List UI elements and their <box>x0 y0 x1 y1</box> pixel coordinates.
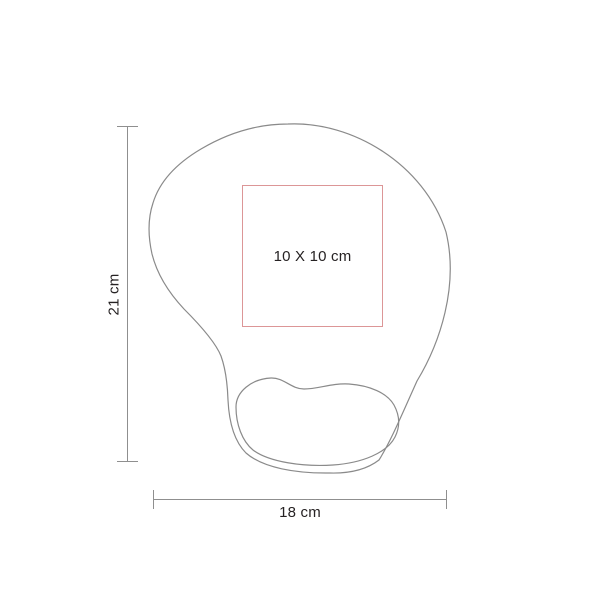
height-dimension-tick-bottom <box>117 461 138 462</box>
width-dimension-label: 18 cm <box>250 504 350 521</box>
wrist-rest-outline <box>236 378 399 465</box>
width-dimension-tick-right <box>446 490 447 509</box>
width-dimension-line <box>153 499 447 500</box>
height-dimension-tick-top <box>117 126 138 127</box>
height-dimension-label: 21 cm <box>106 265 123 325</box>
width-dimension-tick-left <box>153 490 154 509</box>
print-area-label: 10 X 10 cm <box>274 248 352 265</box>
product-dimension-diagram: 10 X 10 cm 21 cm 18 cm <box>0 0 600 600</box>
print-area-box: 10 X 10 cm <box>242 185 383 327</box>
height-dimension-line <box>127 126 128 462</box>
